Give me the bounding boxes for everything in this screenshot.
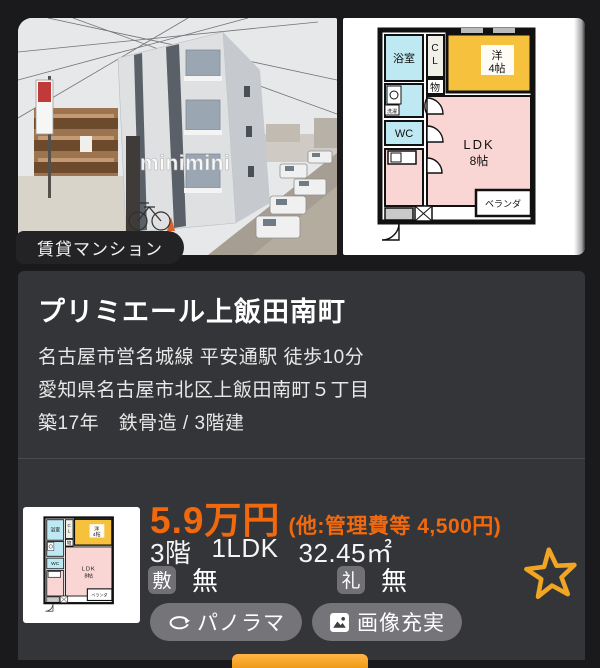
svg-text:ベランダ: ベランダ (91, 591, 107, 597)
floorplan-thumb-drawing: 洋 4帖 浴室 C L 物 WC LDK 8帖 ベランダ (28, 512, 136, 618)
photo-watermark: minimini (140, 152, 230, 175)
room-western-label: 洋 (492, 48, 503, 62)
svg-text:LDK: LDK (81, 567, 95, 573)
room-laundry-label: 洗濯 (387, 108, 397, 115)
property-photo[interactable]: minimini (18, 18, 337, 255)
page-curl-shadow (574, 18, 585, 255)
cta-button-partial[interactable] (232, 654, 368, 668)
room-ldk-size: 8帖 (470, 153, 489, 168)
building-line: 築17年 鉄骨造 / 3階建 (38, 407, 558, 440)
feature-buttons: パノラマ 画像充実 (150, 603, 462, 641)
room-wc-label: WC (395, 128, 413, 140)
room-closet-label2: L (432, 56, 438, 67)
room-western-size: 4帖 (488, 62, 505, 75)
svg-text:物: 物 (66, 540, 71, 547)
room-closet-label: C (431, 43, 438, 54)
panorama-label: パノラマ (197, 607, 285, 637)
rich-images-button[interactable]: 画像充実 (312, 603, 462, 641)
rotate-360-icon (167, 614, 190, 631)
fee-row: 敷 無 礼 無 (148, 561, 407, 598)
panorama-button[interactable]: パノラマ (150, 603, 302, 641)
room-ldk-label: LDK (463, 137, 494, 152)
deposit-value: 無 (192, 561, 218, 598)
floorplan-image[interactable]: 洋 4帖 浴室 C L 物 洗濯 WC LDK 8帖 (343, 18, 585, 255)
room-veranda-label: ベランダ (485, 198, 521, 209)
category-badge: 賃貸マンション (16, 231, 184, 264)
star-outline-icon (522, 544, 580, 604)
svg-text:WC: WC (51, 561, 60, 567)
rich-images-label: 画像充実 (357, 607, 445, 637)
address-line: 愛知県名古屋市北区上飯田南町５丁目 (38, 374, 558, 407)
section-divider (18, 458, 585, 459)
image-icon (329, 612, 350, 633)
property-info: 名古屋市営名城線 平安通駅 徒歩10分 愛知県名古屋市北区上飯田南町５丁目 築1… (38, 341, 558, 440)
room-storage-label: 物 (430, 81, 440, 94)
deposit-chip: 敷 (148, 566, 176, 594)
favorite-star-button[interactable] (522, 544, 580, 604)
floorplan-drawing: 洋 4帖 浴室 C L 物 洗濯 WC LDK 8帖 (343, 18, 585, 255)
floorplan-thumbnail[interactable]: 洋 4帖 浴室 C L 物 WC LDK 8帖 ベランダ (23, 507, 140, 623)
room-bath-label: 浴室 (393, 51, 415, 65)
property-title: プリミエール上飯田南町 (38, 290, 558, 329)
category-badge-label: 賃貸マンション (37, 235, 163, 260)
access-line: 名古屋市営名城線 平安通駅 徒歩10分 (38, 341, 558, 374)
key-money-chip: 礼 (337, 566, 365, 594)
photo-illustration: minimini (18, 18, 337, 255)
key-money-value: 無 (381, 561, 407, 598)
